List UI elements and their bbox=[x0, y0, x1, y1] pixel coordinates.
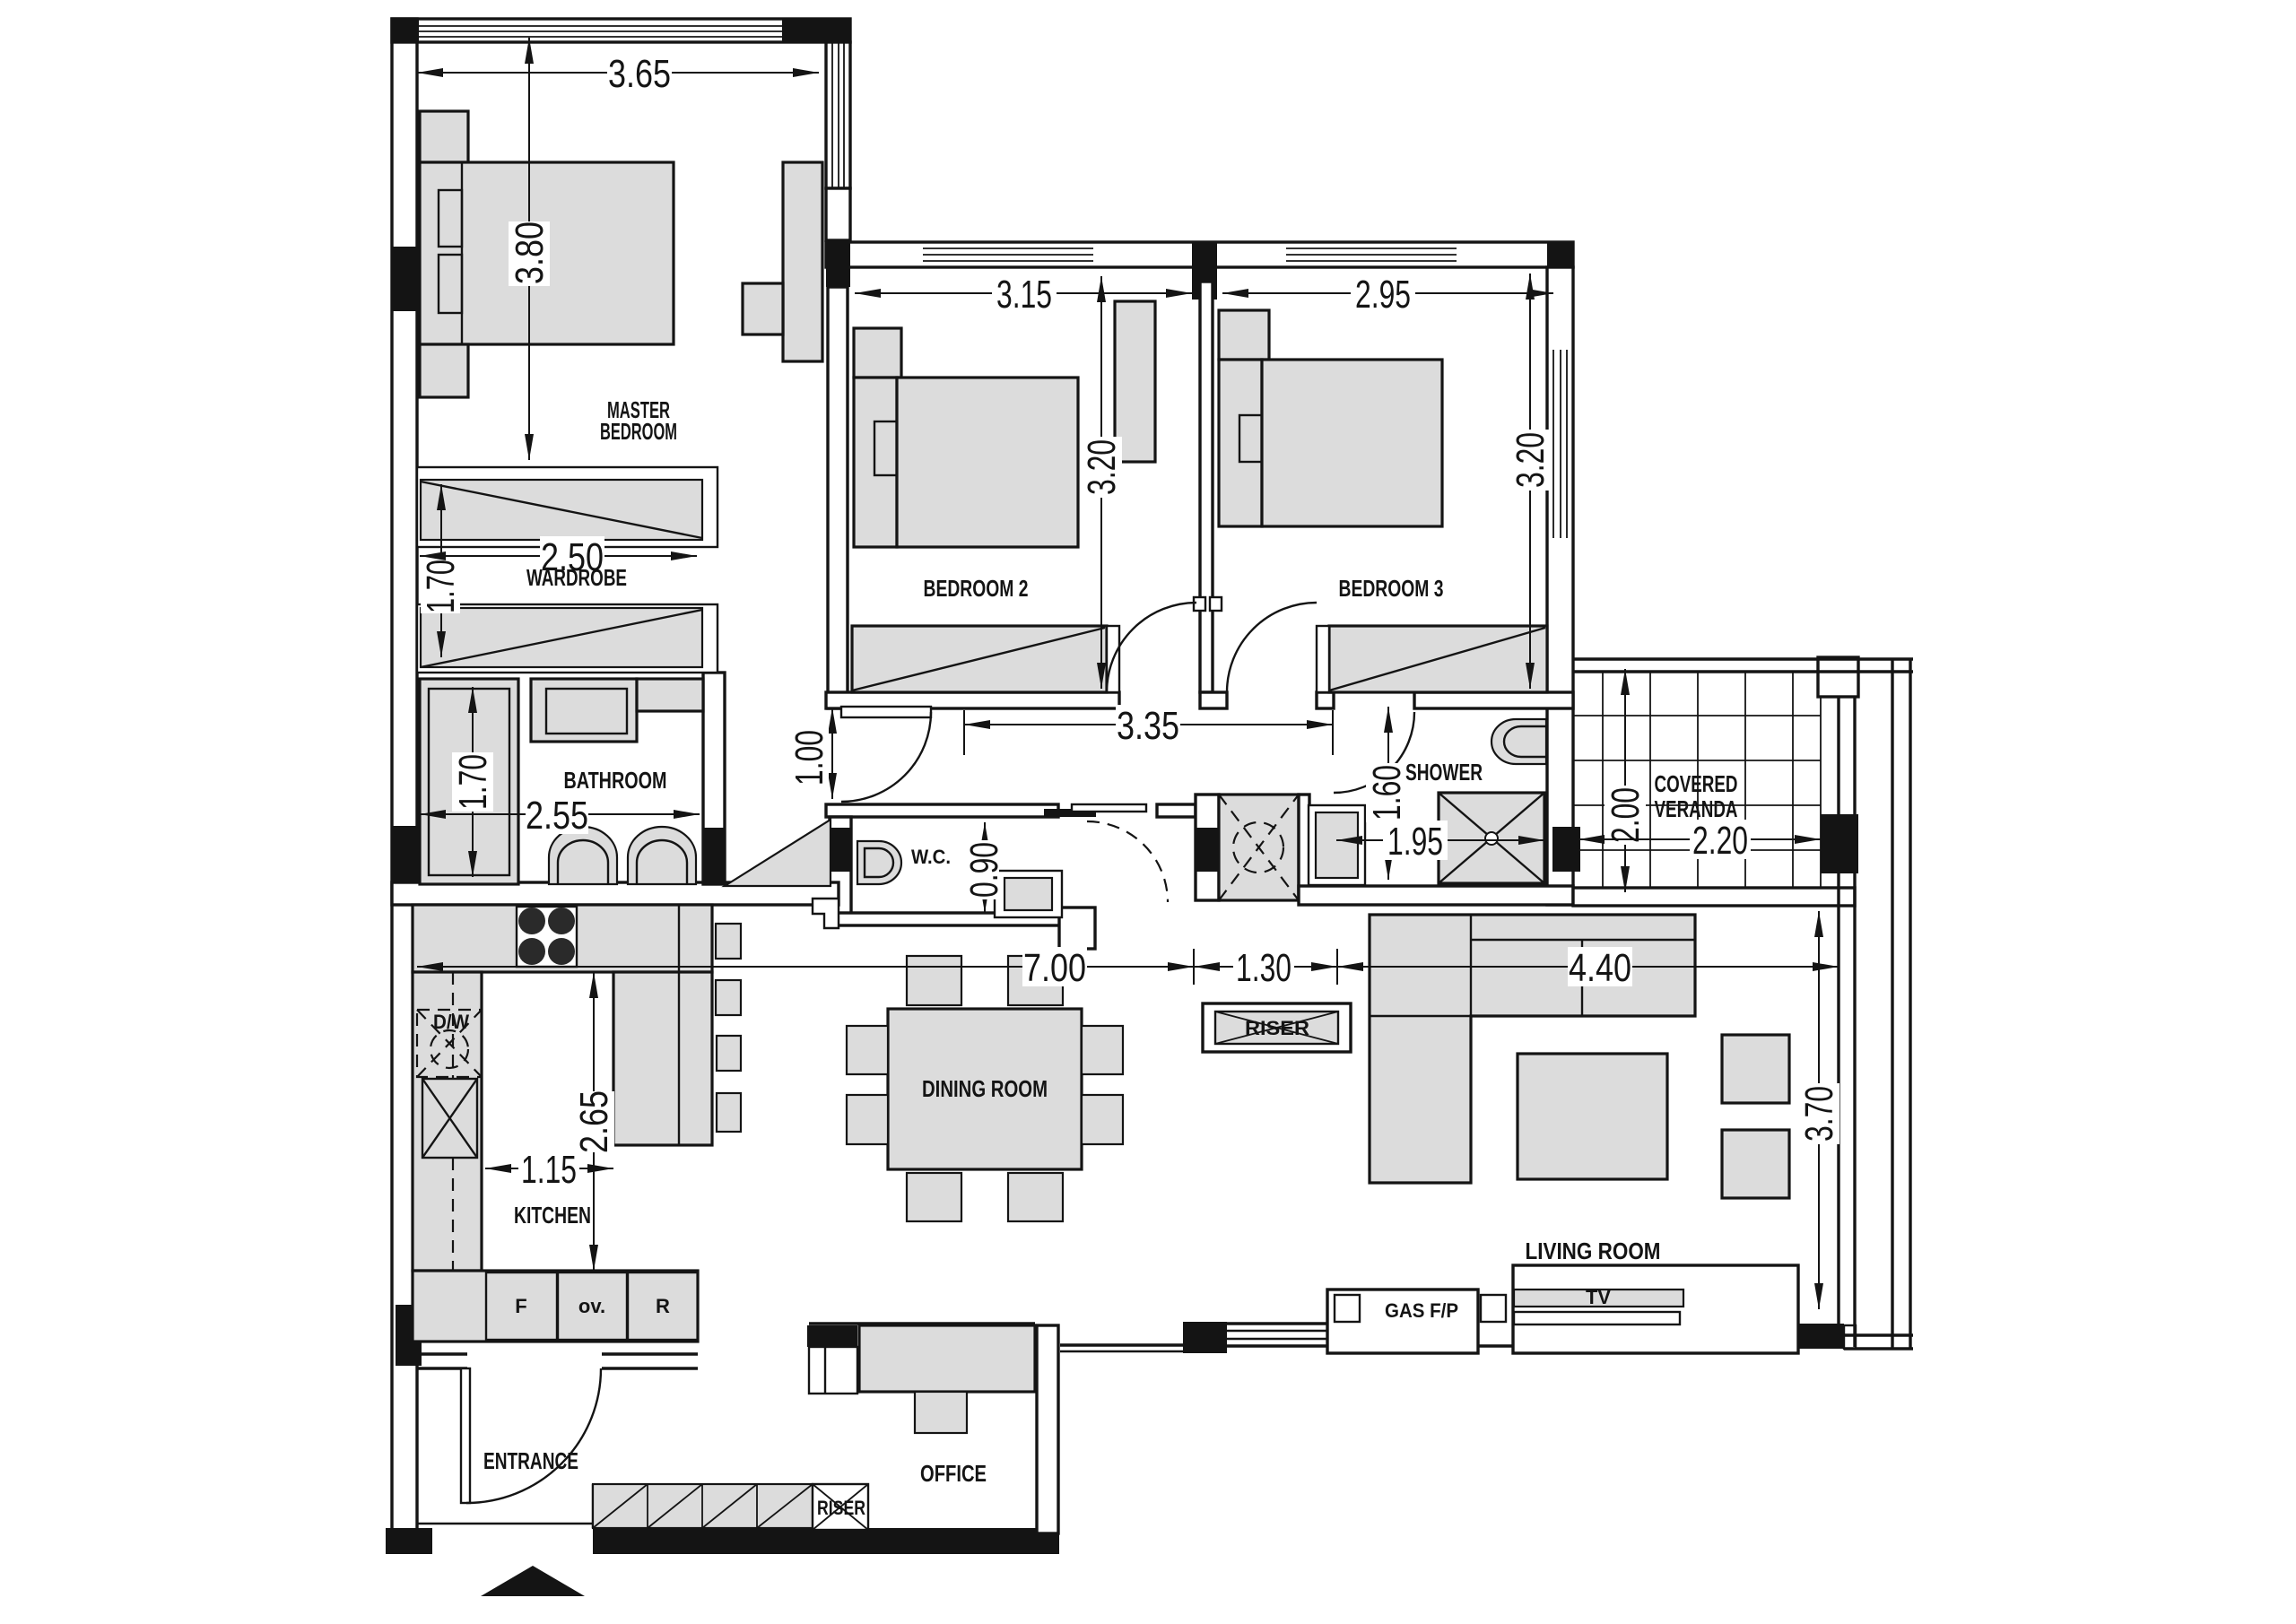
svg-text:RISER: RISER bbox=[1245, 1017, 1309, 1039]
svg-text:RISER: RISER bbox=[817, 1497, 865, 1519]
svg-text:2.95: 2.95 bbox=[1355, 273, 1411, 317]
svg-text:BATHROOM: BATHROOM bbox=[564, 767, 667, 794]
svg-text:ENTRANCE: ENTRANCE bbox=[483, 1447, 578, 1474]
svg-text:KITCHEN: KITCHEN bbox=[514, 1202, 591, 1229]
svg-text:4.40: 4.40 bbox=[1569, 946, 1631, 990]
svg-text:F: F bbox=[515, 1295, 526, 1317]
svg-text:0.90: 0.90 bbox=[962, 842, 1006, 898]
svg-text:1.30: 1.30 bbox=[1236, 946, 1291, 990]
svg-text:2.20: 2.20 bbox=[1692, 819, 1748, 863]
svg-text:R: R bbox=[656, 1295, 670, 1317]
svg-text:2.65: 2.65 bbox=[572, 1090, 616, 1153]
svg-text:OFFICE: OFFICE bbox=[920, 1460, 987, 1487]
svg-text:ov.: ov. bbox=[578, 1295, 605, 1317]
svg-text:7.00: 7.00 bbox=[1023, 946, 1086, 990]
svg-text:3.65: 3.65 bbox=[608, 52, 671, 96]
svg-text:VERANDA: VERANDA bbox=[1655, 795, 1738, 822]
svg-text:2.55: 2.55 bbox=[526, 794, 588, 838]
svg-text:1.70: 1.70 bbox=[451, 754, 495, 810]
svg-text:COVERED: COVERED bbox=[1655, 770, 1738, 797]
svg-text:1.60: 1.60 bbox=[1365, 765, 1409, 821]
svg-text:1.15: 1.15 bbox=[521, 1148, 577, 1192]
svg-text:3.15: 3.15 bbox=[996, 273, 1052, 317]
svg-text:3.80: 3.80 bbox=[508, 221, 552, 284]
svg-text:1.95: 1.95 bbox=[1387, 820, 1443, 864]
svg-text:D/W: D/W bbox=[433, 1011, 469, 1033]
svg-text:1.70: 1.70 bbox=[419, 560, 463, 613]
svg-text:DINING ROOM: DINING ROOM bbox=[922, 1075, 1048, 1102]
svg-text:3.20: 3.20 bbox=[1080, 439, 1124, 495]
svg-text:3.20: 3.20 bbox=[1509, 432, 1552, 488]
svg-text:WARDROBE: WARDROBE bbox=[526, 564, 627, 591]
svg-text:3.70: 3.70 bbox=[1797, 1086, 1841, 1142]
svg-text:3.35: 3.35 bbox=[1117, 704, 1179, 748]
svg-text:BEDROOM 2: BEDROOM 2 bbox=[924, 575, 1029, 602]
svg-text:2.00: 2.00 bbox=[1604, 787, 1648, 843]
svg-text:BEDROOM 3: BEDROOM 3 bbox=[1339, 575, 1444, 602]
svg-text:1.00: 1.00 bbox=[787, 730, 831, 786]
svg-text:BEDROOM: BEDROOM bbox=[600, 418, 677, 445]
svg-text:LIVING ROOM: LIVING ROOM bbox=[1526, 1238, 1661, 1264]
svg-text:GAS F/P: GAS F/P bbox=[1385, 1299, 1458, 1322]
svg-text:TV: TV bbox=[1586, 1286, 1611, 1308]
svg-text:W.C.: W.C. bbox=[911, 846, 951, 868]
svg-text:SHOWER: SHOWER bbox=[1405, 759, 1483, 786]
